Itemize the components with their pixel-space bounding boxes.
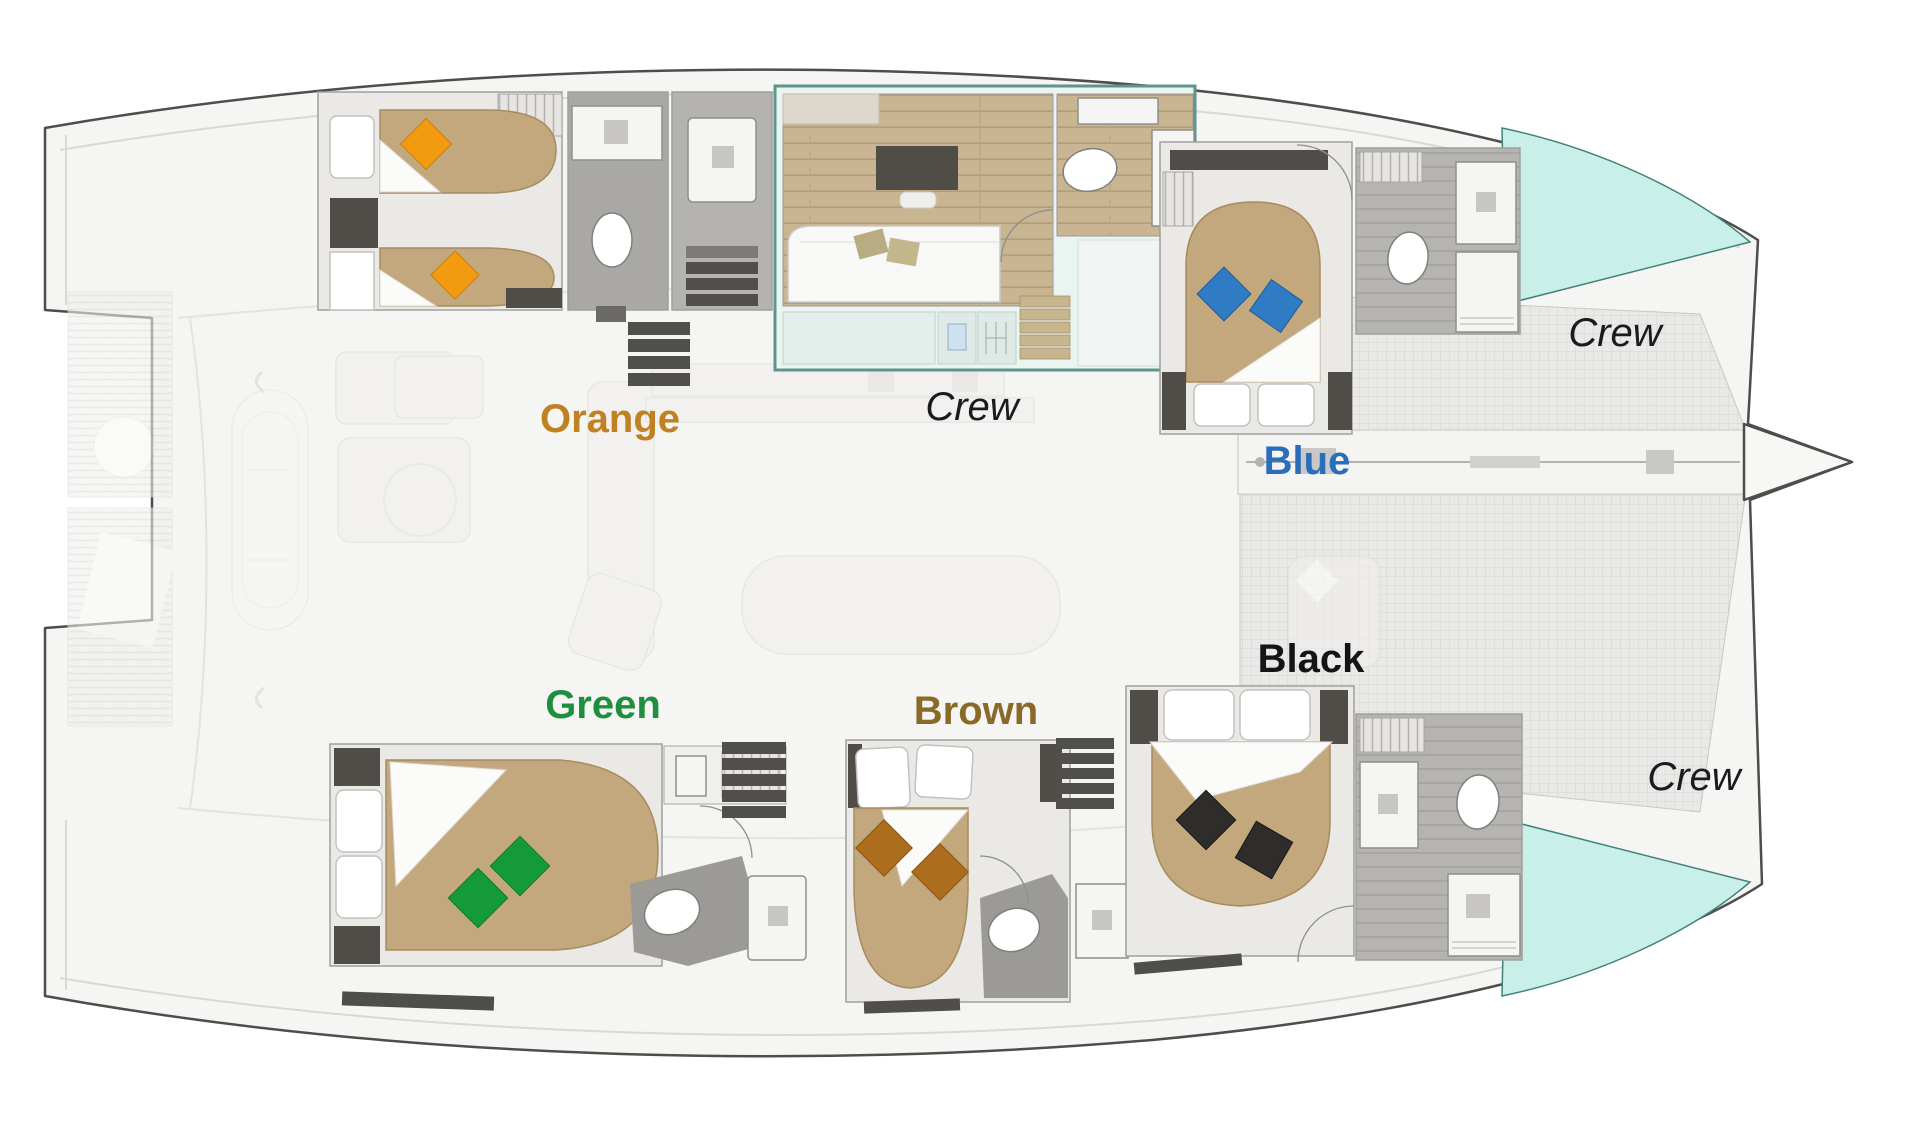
cabin-black: [1126, 686, 1354, 962]
corridor-port-hull: [672, 92, 772, 310]
aft-table: [94, 417, 154, 477]
crew-berth-band: [783, 312, 935, 364]
crew-desk: [876, 146, 958, 190]
label-crew-cabin: Crew: [925, 385, 1021, 429]
bathroom-blue: [1356, 148, 1520, 334]
black-bed: [1150, 690, 1332, 906]
cabin-green: [330, 744, 662, 966]
cockpit-table: [384, 464, 456, 536]
cabin-brown: [846, 740, 1070, 1002]
stairs-fwd-hull: [1056, 738, 1114, 809]
crew-stairs: [1020, 296, 1070, 359]
bathroom-orange: [568, 92, 668, 310]
label-crew-bow-starboard: Crew: [1647, 755, 1743, 799]
toilet-icon: [592, 213, 632, 267]
sink-counter: [1078, 98, 1158, 124]
label-blue: Blue: [1264, 439, 1351, 483]
wardrobe-icon: [1360, 718, 1424, 752]
wardrobe-icon: [1360, 152, 1422, 182]
cabin-orange: [318, 92, 562, 310]
catamaran-deck-plan: Orange Crew Blue Crew Green Brown Black …: [0, 0, 1920, 1125]
label-black: Black: [1258, 637, 1365, 681]
nav-station: [395, 356, 483, 418]
label-crew-bow-port: Crew: [1568, 311, 1664, 355]
bathroom-black: [1356, 714, 1522, 960]
label-orange: Orange: [540, 397, 680, 441]
deck-plan-stage: Orange Crew Blue Crew Green Brown Black …: [0, 0, 1920, 1125]
wardrobe-icon: [1163, 172, 1193, 226]
crew-chair: [900, 192, 936, 208]
bowsprit: [1744, 424, 1852, 500]
label-brown: Brown: [914, 689, 1038, 733]
stairs-mid-hull: [722, 742, 786, 818]
crew-bed: [788, 226, 1000, 302]
saloon-sofa: [742, 556, 1060, 654]
cabin-blue: [1160, 142, 1352, 434]
cabin-crew: [775, 86, 1195, 370]
label-green: Green: [545, 683, 661, 727]
sink-counter: [1456, 252, 1518, 332]
crew-cabinet: [783, 94, 879, 124]
